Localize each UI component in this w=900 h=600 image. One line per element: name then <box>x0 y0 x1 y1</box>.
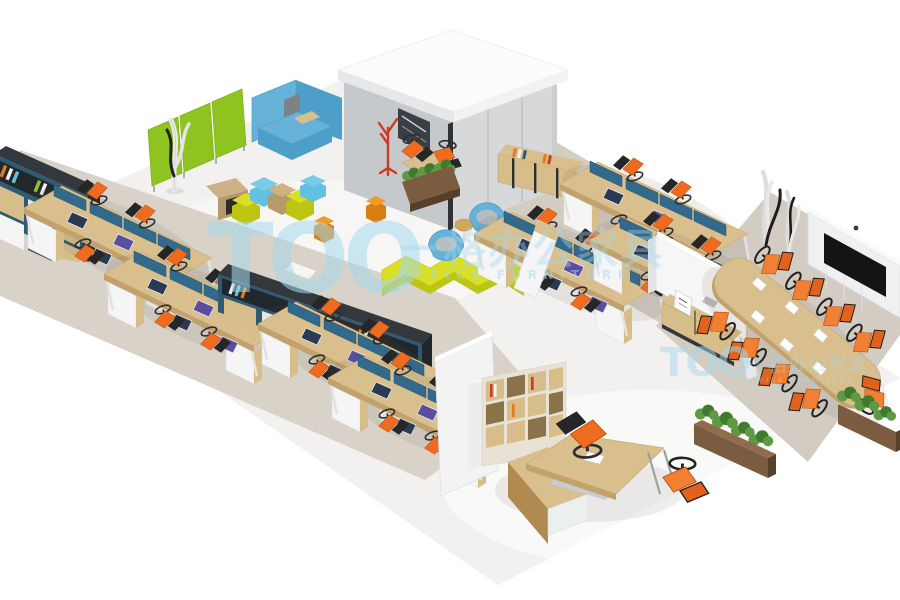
watermark-cn: 一格办公家具 <box>400 225 664 274</box>
watermark-en: OFFICE FURNITURE <box>399 268 632 282</box>
conference-planter <box>837 387 900 452</box>
watermark-logo: TOO <box>660 340 749 386</box>
watermark-en: OFFICE FURNITURE <box>744 376 854 384</box>
office-floorplan-render: TOO 一格办公家具 OFFICE FURNITURE TOO 一格办公家具 O… <box>0 0 900 600</box>
watermark-logo: TOO <box>208 203 420 315</box>
isometric-office-scene: TOO 一格办公家具 OFFICE FURNITURE TOO 一格办公家具 O… <box>0 0 900 600</box>
watermark-cn: 一格办公家具 <box>748 353 868 376</box>
camera-dot <box>854 226 859 231</box>
